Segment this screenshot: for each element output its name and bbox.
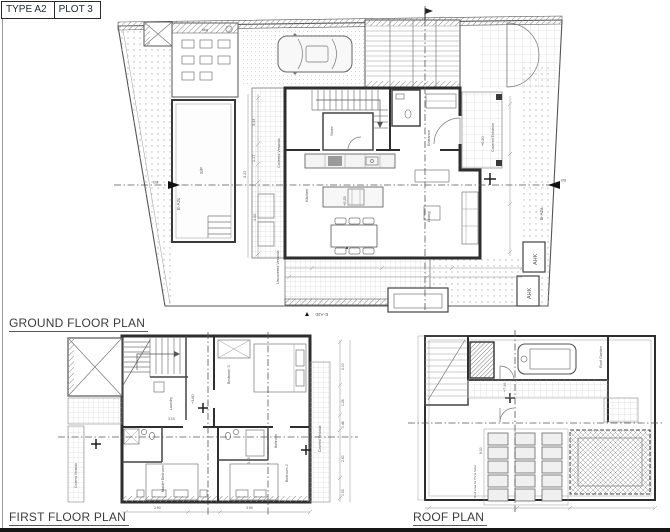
covered-entrance: Covered Entrance +0.20 [462,92,502,168]
master-bedroom-label: Master Bedroom [161,465,165,492]
first-floor-plan-title: FIRST FLOOR PLAN [9,510,129,526]
bathroom-left [124,429,155,444]
ahk-label-2: AHK [527,287,533,299]
dim-g-2: 3.22 [243,171,247,178]
pv-note: Roof area for PV & Solar [473,465,477,498]
section-bottom-label: E-A2b [315,312,328,316]
rooflight-void [68,338,122,424]
uncovered-veranda-label: Uncovered Veranda [276,250,280,284]
entrance-label: Entrance [426,129,431,146]
dim-f-0: 3.90 [154,506,161,510]
section-left-label: E-A2c [176,197,181,210]
b3-right-label: B3 [560,178,566,183]
swimming-pool: S/P [172,100,235,242]
bedroom2-label: Bedroom 2 [285,464,289,482]
roof-garden-label: Roof Garden [599,346,603,368]
laundry-room: Laundry [154,382,173,410]
plot-label: PLOT 3 [54,1,101,19]
roof-staircase-icon [425,336,468,405]
dim-f-3: 2.00 [341,363,345,370]
title-block: TYPE A2 PLOT 3 [1,1,101,19]
veranda-left-label: Covered Veranda [74,463,78,488]
pv-panels: Roof area for PV & Solar 8.30 [473,429,568,505]
dim-f-1: 3.25 [247,457,251,464]
planter-box [388,288,448,312]
ahk-label-1: AHK [533,253,539,265]
deck-terrace: bbq [172,23,238,97]
pergola-roof [570,430,650,494]
covered-veranda: Covered Veranda [252,88,285,258]
pergola-square-icon [144,22,172,46]
roof-skylight [470,342,494,378]
roof-plan-drawing: Roof Garden +7.10 Roof area for PV & Sol… [408,330,670,516]
dim-f-2: 3.15 [168,417,175,421]
ground-floor-plan-title: GROUND FLOOR PLAN [9,316,148,332]
ahk-unit-2: AHK [517,276,539,306]
bedroom3: Bedroom 3 [218,340,306,392]
veranda-right-label: Covered Veranda [318,425,322,452]
bedroom3-label: Bedroom 3 [227,365,231,384]
section-marker-bottom: E-A2b [303,312,328,316]
dim-f-bottom2: 3.90 [246,506,253,510]
bathroom-label: Bathroom [274,434,278,448]
dim-f-4: 1.26 [341,399,345,406]
kitchen-label: Kitchen [304,189,309,202]
dim-g-0: 3.44 [252,119,256,126]
type-label: TYPE A2 [1,1,55,19]
covered-veranda-label: Covered Veranda [277,138,281,168]
sheet-edge-line [2,16,3,528]
dim-f-7: 0.53 [341,489,345,496]
b3-left-label: B3 [152,180,158,185]
car-icon [278,34,352,75]
right-veranda-strip: Covered Veranda [301,362,330,502]
covered-entrance-label: Covered Entrance [491,123,495,152]
bathroom-right: Bathroom [225,429,278,456]
ahk-unit-1: AHK [523,242,545,272]
drawing-sheet: TYPE A2 PLOT 3 [0,0,670,532]
first-floor-plan-drawing: Covered Veranda Laundry +3.80 3.15 [58,332,404,524]
dim-f-5: 0.46 [341,421,345,428]
driveway-ramp [365,20,460,87]
roof-tile-band [468,380,638,422]
ground-floor-plan-drawing: bbq S/P [90,6,582,316]
corridor: +3.80 3.15 [168,394,208,421]
first-level: +3.80 [191,394,195,404]
laundry-label: Laundry [169,397,173,410]
first-staircase-icon [122,338,180,387]
bbq-label: bbq [202,28,208,32]
entrance-level: +0.20 [481,136,485,146]
roof-plan-title: ROOF PLAN [413,510,487,526]
dim-g-3: 4.00 [253,214,257,221]
dim-g-1: 1.17 [252,155,256,162]
sheet-bottom-border [0,528,670,532]
dim-r-0: 8.30 [479,447,483,454]
section-right-label: E-A2a [539,207,544,220]
living-label: Living [426,212,431,222]
store-label: Store [329,126,334,136]
jacuzzi-icon [518,344,576,374]
pool-label: S/P [199,167,204,174]
ground-level: +0.25 [343,196,347,206]
dim-f-6: 2.60 [341,455,345,462]
